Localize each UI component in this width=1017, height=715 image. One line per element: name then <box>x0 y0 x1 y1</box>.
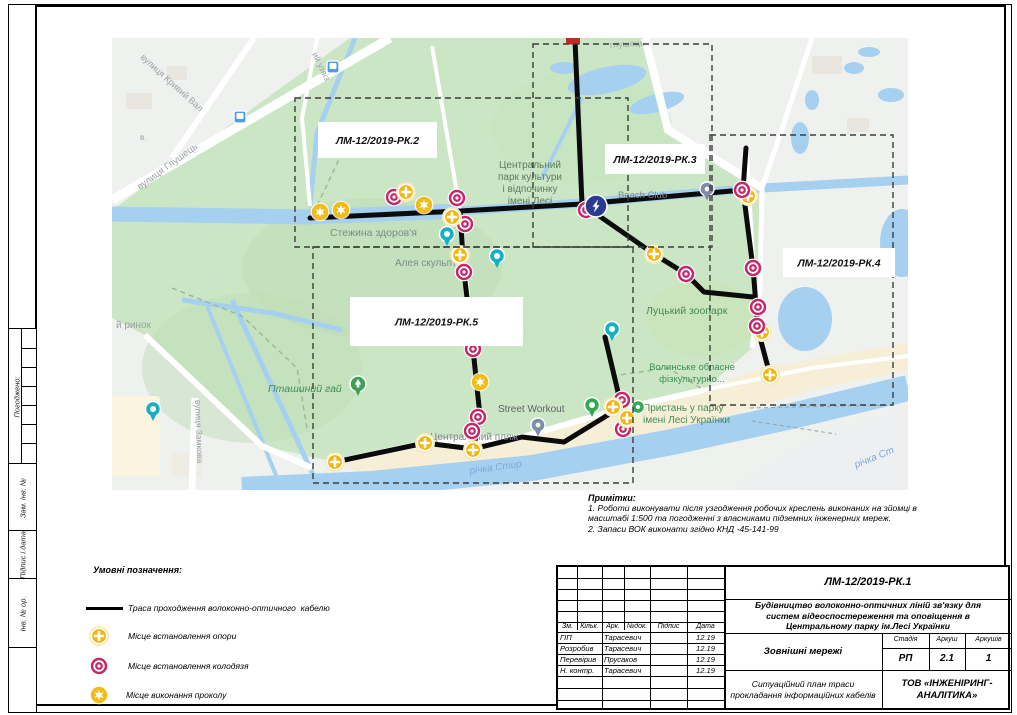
legend: Умовні позначення: Траса проходження вол… <box>86 565 426 575</box>
legend-title: Умовні позначення: <box>93 565 426 575</box>
puncture-icon <box>88 684 110 706</box>
star-marker-icon <box>332 201 351 220</box>
sidebar-box-approved: Погоджено: <box>8 328 37 465</box>
divider <box>577 567 578 630</box>
row-name: Тарасевич <box>602 665 650 676</box>
project-title: Будівництво волоконно-оптичних ліній зв'… <box>724 599 1012 633</box>
star-marker-icon <box>471 373 490 392</box>
sidebar-label-zam-inv: Зам. інв. № <box>18 477 27 517</box>
legend-item-label: Місце встановлення опори <box>128 631 236 641</box>
sidebar-box-inv-or: Інв. № ор. <box>8 578 37 649</box>
divider <box>558 676 724 677</box>
notes-line: 2. Запаси ВОК виконати згідно КНД -45-14… <box>588 524 1008 534</box>
col-header-kilk: Кільк. <box>577 622 602 632</box>
document-code: ЛМ-12/2019-РК.1 <box>724 567 1012 599</box>
map-label: Луцький зоопарк <box>646 305 728 317</box>
zone-label: ЛМ-12/2019-РК.4 <box>796 258 880 270</box>
bus-marker-icon <box>234 111 246 123</box>
row-role: Розробив <box>558 643 602 654</box>
well-marker-icon <box>463 422 482 441</box>
divider <box>21 443 36 444</box>
map-label: і відпочинку <box>503 184 558 195</box>
row-role: Н. контр. <box>558 665 602 676</box>
col-header-ndok: №док. <box>624 622 650 632</box>
row-date: 12.19 <box>687 665 724 676</box>
row-role: ГІП <box>558 632 602 643</box>
title-block: Зм. Кільк. Арк. №док. Підпис Дата ГІП Та… <box>556 565 1010 710</box>
divider <box>558 589 724 590</box>
sidebar-box-zam-inv: Зам. інв. № <box>8 463 37 532</box>
divider <box>624 567 625 630</box>
sidebar-label-sign-date: Підпис і дата <box>18 531 27 579</box>
divider <box>558 578 724 579</box>
well-marker-icon <box>744 259 763 278</box>
sheets-value: 1 <box>965 648 1012 670</box>
sidebar-box-sign-date: Підпис і дата <box>8 530 37 580</box>
well-marker-icon <box>749 298 768 317</box>
map-label: Центральний <box>499 160 561 171</box>
stage-header: Стадія <box>882 633 929 648</box>
row-date: 12.19 <box>687 632 724 643</box>
sheets-header: Аркушів <box>965 633 1012 648</box>
notes-line: масштабі 1:500 та погодженні з власникам… <box>588 513 1008 523</box>
company-name-line: ТОВ «ІНЖЕНІРИНГ- <box>901 678 992 690</box>
col-header-date: Дата <box>687 622 724 632</box>
well-marker-icon <box>455 263 474 282</box>
map-label: імені Лесі Українки <box>643 415 730 426</box>
map-label: Стежина здоров'я <box>330 227 417 239</box>
row-name: Тарасевич <box>602 643 650 654</box>
stage-value: РП <box>882 648 929 670</box>
divider <box>21 348 36 349</box>
company-name: ТОВ «ІНЖЕНІРИНГ- АНАЛІТИКА» <box>882 670 1012 710</box>
row-name: Тарасевич <box>602 632 650 643</box>
notes-block: Примітки: 1. Роботи виконувати після узг… <box>588 493 1008 534</box>
drawing-title-line: прокладання інформаційних кабелів <box>730 690 875 701</box>
col-header-ark: Арк. <box>602 622 624 632</box>
sidebar-label-approved: Погоджено: <box>13 376 22 417</box>
pole-marker-icon <box>442 207 462 227</box>
project-title-line: Будівництво волоконно-оптичних ліній зв'… <box>755 600 981 611</box>
legend-item-label: Траса проходження волоконно-оптичного ка… <box>128 603 330 613</box>
zone-label: ЛМ-12/2019-РК.3 <box>612 154 696 166</box>
sidebar-label-inv-or: Інв. № ор. <box>18 596 27 631</box>
sheet-header: Аркуш <box>929 633 965 648</box>
col-header-sign: Підпис <box>650 622 687 632</box>
star-marker-icon <box>415 196 434 215</box>
legend-item-label: Місце встановлення колодязя <box>128 661 249 671</box>
project-title-line: Центральному парку ім.Лесі Українки <box>786 621 950 632</box>
map-label: імені Лесі <box>508 196 553 207</box>
row-date: 12.19 <box>687 654 724 665</box>
zone-label: ЛМ-12/2019-РК.2 <box>335 135 419 147</box>
notes-line: 1. Роботи виконувати після узгодження ро… <box>588 503 1008 513</box>
sheet-value: 2.1 <box>929 648 965 670</box>
well-marker-icon <box>677 265 696 284</box>
well-marker-icon <box>748 317 767 336</box>
divider <box>21 386 36 387</box>
divider <box>21 367 36 368</box>
pole-marker-icon <box>450 245 470 265</box>
drawing-title-line: Ситуаційний план траси <box>752 679 854 690</box>
well-marker-icon <box>733 181 752 200</box>
divider <box>558 688 724 689</box>
section-title: Зовнішні мережі <box>724 633 882 670</box>
well-icon <box>88 655 110 677</box>
map-label: Beach Club <box>618 190 667 201</box>
map-label: фізкультурно... <box>659 374 725 385</box>
drawing-sheet: Погоджено: Зам. інв. № Підпис і дата Інв… <box>0 0 1017 715</box>
pole-marker-icon <box>463 440 483 460</box>
route-line-icon <box>86 607 123 610</box>
drawing-title: Ситуаційний план траси прокладання інфор… <box>724 670 882 710</box>
company-name-line: АНАЛІТИКА» <box>917 690 977 702</box>
pole-icon <box>88 625 110 647</box>
legend-item-label: Місце виконання проколу <box>126 690 226 700</box>
star-marker-icon <box>311 203 330 222</box>
row-date: 12.19 <box>687 643 724 654</box>
col-header-zm: Зм. <box>558 622 577 632</box>
map-label: парк культури <box>498 172 562 183</box>
map-label: в. <box>140 133 146 142</box>
well-marker-icon <box>448 189 467 208</box>
row-name: Прусаков <box>602 654 650 665</box>
pole-marker-icon <box>325 452 345 472</box>
junction-marker-icon <box>585 195 607 217</box>
zone-label: ЛМ-12/2019-РК.5 <box>394 317 478 329</box>
bus-marker-icon <box>327 61 339 73</box>
divider <box>558 611 724 612</box>
sidebar-box-empty <box>8 647 37 713</box>
map-label: й ринок <box>116 320 152 331</box>
divider <box>558 600 724 601</box>
map-label: Волинське обласне <box>649 362 735 373</box>
project-title-line: систем відеоспостереження та оповіщення … <box>766 611 970 622</box>
divider <box>558 700 724 701</box>
pole-marker-icon <box>760 365 780 385</box>
row-role: Перевірив <box>558 654 602 665</box>
situational-map[interactable]: вулиця Кривий Валий узвізвулиця Глушецьв… <box>112 38 908 490</box>
pole-marker-icon <box>396 182 416 202</box>
divider <box>21 405 36 406</box>
pole-marker-icon <box>415 433 435 453</box>
map-label: Пташиний гай <box>268 383 342 395</box>
notes-title: Примітки: <box>588 493 1008 503</box>
divider <box>21 424 36 425</box>
map-label: Street Workout <box>498 404 565 415</box>
